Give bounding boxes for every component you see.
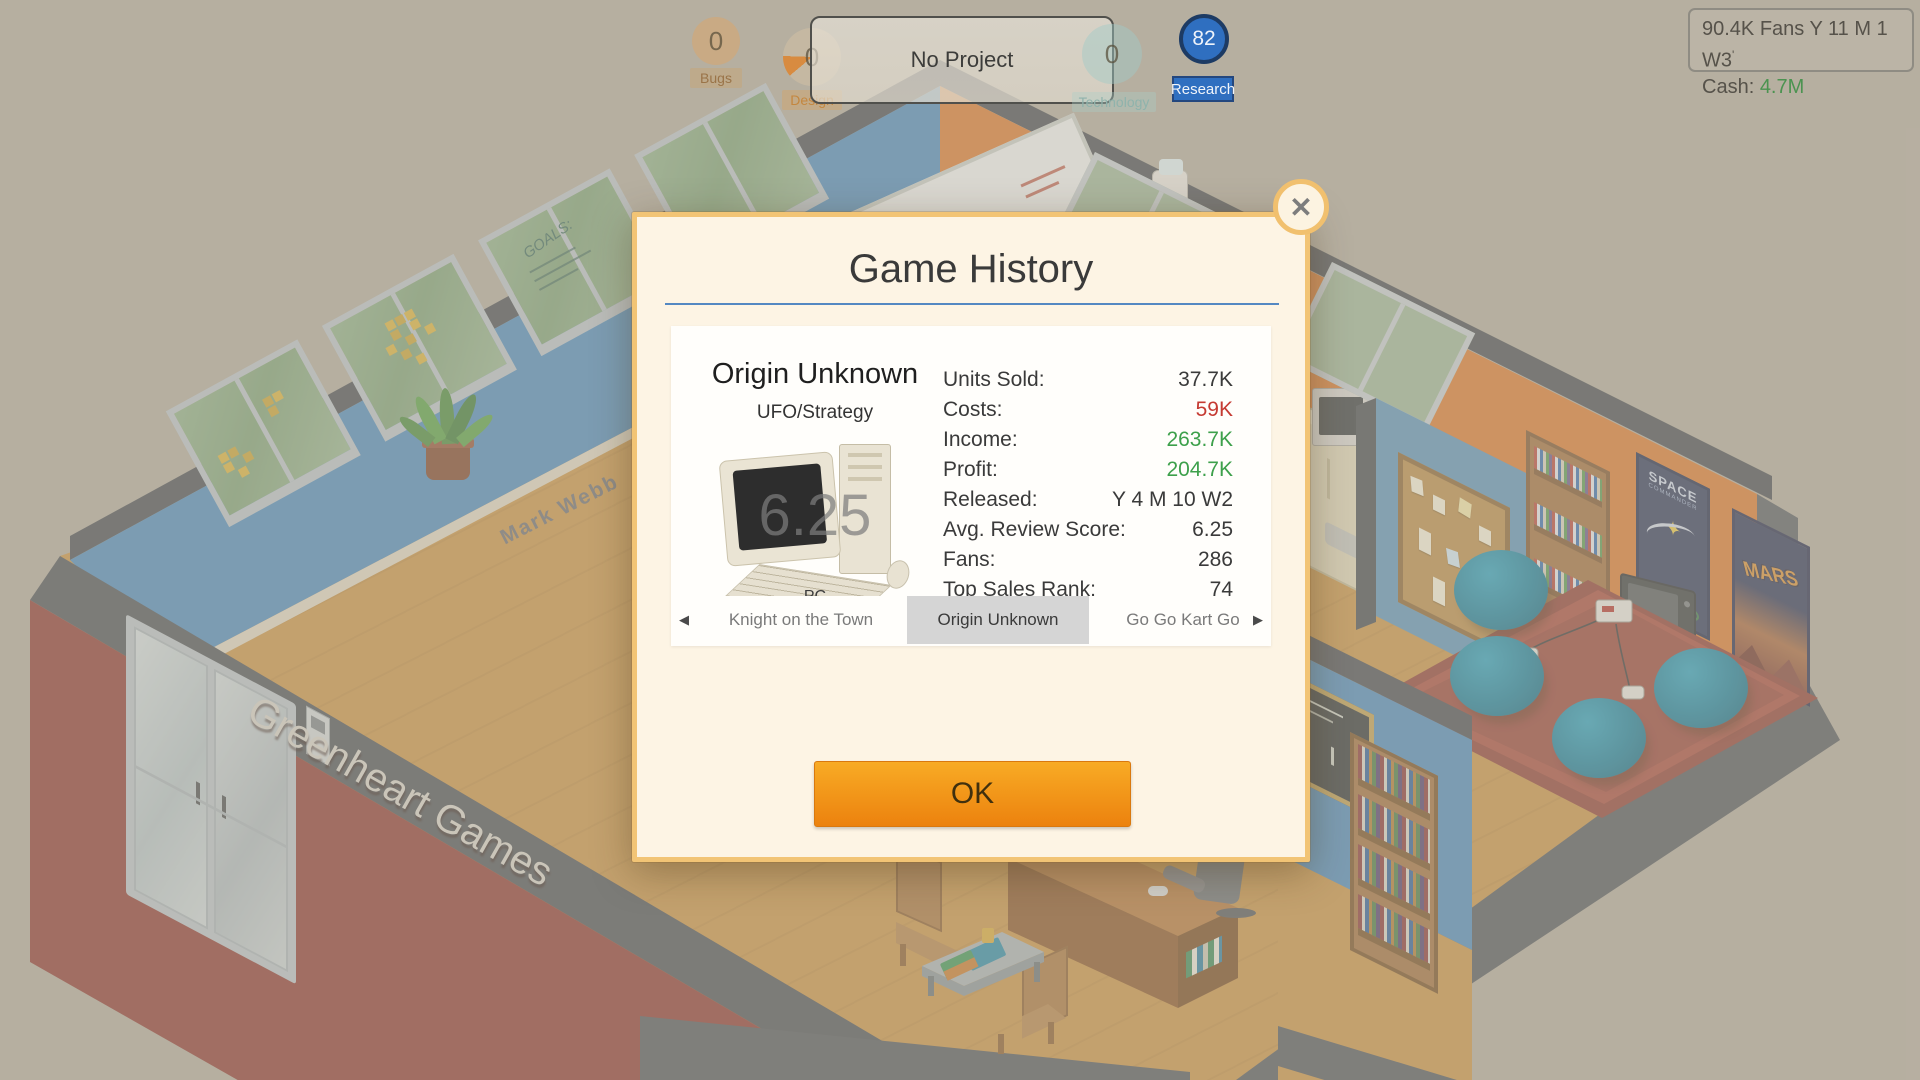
- title-underline: [665, 303, 1279, 305]
- dialog-title: Game History: [637, 247, 1305, 292]
- stat-row-review-score: Avg. Review Score: 6.25: [943, 518, 1235, 544]
- stat-row-fans: Fans: 286: [943, 548, 1235, 574]
- game-nav-strip: ◀ Knight on the Town Origin Unknown Go G…: [671, 596, 1271, 644]
- nav-current-game[interactable]: Origin Unknown: [907, 596, 1089, 644]
- ok-button[interactable]: OK: [814, 761, 1131, 827]
- prev-game-arrow[interactable]: ◀: [671, 596, 697, 644]
- next-game-arrow[interactable]: ▶: [1245, 596, 1271, 644]
- ok-button-label: OK: [951, 777, 994, 811]
- stat-row-costs: Costs: 59K: [943, 398, 1235, 424]
- stat-row-released: Released: Y 4 M 10 W2: [943, 488, 1235, 514]
- review-score-watermark: 6.25: [685, 482, 945, 549]
- nav-prev-game[interactable]: Knight on the Town: [701, 596, 901, 644]
- stat-row-units: Units Sold: 37.7K: [943, 368, 1235, 394]
- close-button[interactable]: ✕: [1273, 179, 1329, 235]
- game-screen: GOALS: Mark Webb: [0, 0, 1920, 1080]
- right-arrow-icon: ▶: [1253, 612, 1263, 628]
- stat-row-profit: Profit: 204.7K: [943, 458, 1235, 484]
- stat-row-income: Income: 263.7K: [943, 428, 1235, 454]
- close-icon: ✕: [1289, 191, 1312, 224]
- game-history-dialog: Game History Origin Unknown UFO/Strategy…: [632, 212, 1310, 862]
- left-arrow-icon: ◀: [679, 612, 689, 628]
